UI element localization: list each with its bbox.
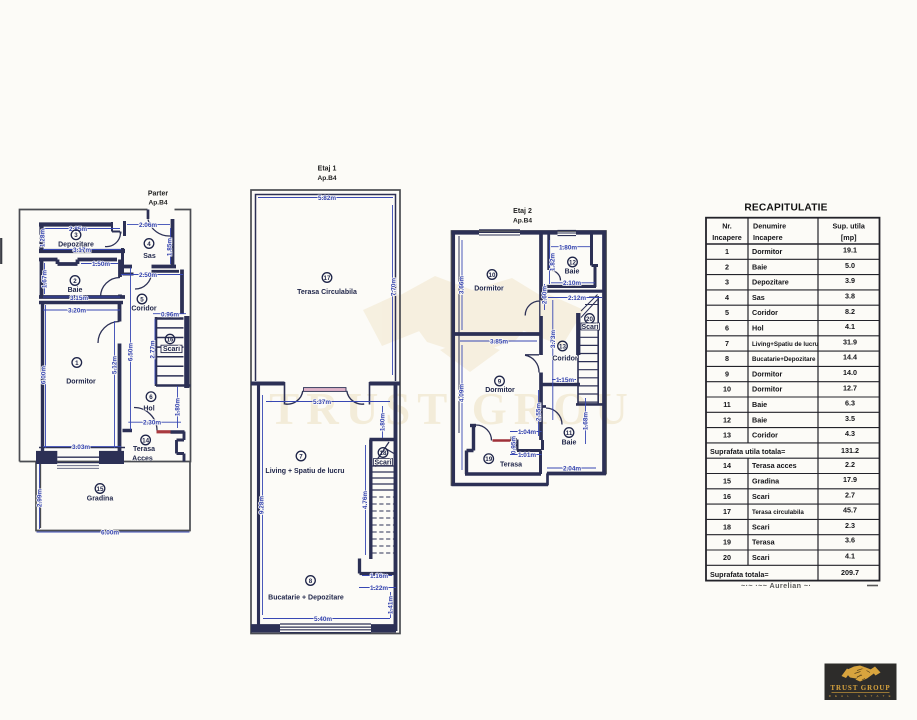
svg-text:10: 10 bbox=[489, 272, 496, 279]
svg-text:2.55m: 2.55m bbox=[536, 403, 543, 421]
svg-text:17: 17 bbox=[324, 275, 331, 282]
svg-text:5: 5 bbox=[725, 308, 729, 317]
svg-text:0.95m: 0.95m bbox=[511, 436, 518, 454]
svg-text:Denumire: Denumire bbox=[753, 222, 786, 231]
svg-text:Living + Spatiu de lucru: Living + Spatiu de lucru bbox=[265, 468, 344, 475]
svg-text:4.1: 4.1 bbox=[845, 552, 855, 561]
svg-text:131.2: 131.2 bbox=[841, 446, 859, 455]
svg-text:12: 12 bbox=[723, 415, 731, 424]
svg-text:Sas: Sas bbox=[752, 293, 765, 302]
svg-text:11: 11 bbox=[566, 430, 573, 437]
svg-text:18: 18 bbox=[380, 450, 387, 457]
svg-text:Dormitor: Dormitor bbox=[752, 247, 783, 256]
svg-text:Scari: Scari bbox=[752, 522, 770, 531]
svg-text:9: 9 bbox=[498, 378, 502, 385]
svg-text:1.04m: 1.04m bbox=[518, 429, 536, 436]
svg-text:1.80m: 1.80m bbox=[175, 398, 182, 416]
svg-text:3.85m: 3.85m bbox=[490, 339, 508, 346]
svg-text:2.77m: 2.77m bbox=[149, 340, 156, 358]
svg-text:5: 5 bbox=[140, 296, 144, 303]
svg-text:2.30m: 2.30m bbox=[143, 420, 161, 427]
svg-text:15: 15 bbox=[723, 477, 731, 486]
svg-text:2.06m: 2.06m bbox=[139, 222, 157, 229]
svg-text:1.16m: 1.16m bbox=[370, 573, 388, 580]
svg-text:Suprafata utila totala=: Suprafata utila totala= bbox=[710, 447, 785, 456]
svg-text:8: 8 bbox=[309, 578, 313, 585]
svg-text:Sas: Sas bbox=[143, 253, 156, 260]
svg-text:Dormitor: Dormitor bbox=[474, 286, 504, 293]
svg-text:7: 7 bbox=[725, 339, 729, 348]
svg-text:13: 13 bbox=[723, 431, 731, 440]
svg-text:20: 20 bbox=[586, 316, 593, 323]
svg-text:Coridor: Coridor bbox=[752, 431, 778, 440]
svg-text:2.12m: 2.12m bbox=[568, 295, 586, 302]
svg-text:1.68m: 1.68m bbox=[583, 412, 590, 430]
svg-text:2.2: 2.2 bbox=[845, 460, 855, 469]
svg-text:R E A L E S T A T E: R E A L E S T A T E bbox=[829, 694, 893, 698]
svg-text:6: 6 bbox=[149, 394, 153, 401]
svg-text:45.7: 45.7 bbox=[843, 506, 857, 515]
svg-text:4: 4 bbox=[725, 293, 729, 302]
svg-text:3: 3 bbox=[74, 232, 78, 239]
svg-text:Incapere: Incapere bbox=[753, 233, 783, 242]
svg-text:Ap.B4: Ap.B4 bbox=[513, 218, 532, 225]
svg-text:Terasa acces: Terasa acces bbox=[752, 461, 797, 470]
svg-text:Dormitor: Dormitor bbox=[752, 369, 783, 378]
svg-text:3.66m: 3.66m bbox=[459, 276, 466, 294]
svg-text:8.2: 8.2 bbox=[845, 307, 855, 316]
svg-text:Nr.: Nr. bbox=[722, 222, 732, 231]
svg-text:Scari: Scari bbox=[581, 324, 598, 331]
svg-text:3: 3 bbox=[725, 278, 729, 287]
svg-text:2.7: 2.7 bbox=[845, 490, 855, 499]
svg-text:Ap.B4: Ap.B4 bbox=[148, 200, 167, 207]
svg-text:14: 14 bbox=[142, 437, 149, 444]
svg-text:Ap.B4: Ap.B4 bbox=[317, 175, 336, 182]
svg-text:Terasa: Terasa bbox=[752, 538, 776, 547]
svg-text:1.01m: 1.01m bbox=[518, 452, 536, 459]
svg-text:3.15m: 3.15m bbox=[70, 295, 88, 302]
svg-text:3.20m: 3.20m bbox=[68, 308, 86, 315]
svg-text:RECAPITULATIE: RECAPITULATIE bbox=[744, 203, 827, 214]
svg-text:5.0: 5.0 bbox=[845, 261, 855, 270]
svg-text:[mp]: [mp] bbox=[841, 233, 857, 242]
svg-text:1.41m: 1.41m bbox=[388, 596, 395, 614]
svg-text:Acces: Acces bbox=[132, 456, 153, 463]
svg-text:Terasa circulabila: Terasa circulabila bbox=[752, 509, 804, 516]
svg-text:Parter: Parter bbox=[148, 191, 169, 198]
svg-text:8: 8 bbox=[725, 354, 729, 363]
svg-text:6.00m: 6.00m bbox=[41, 366, 48, 384]
svg-text:Living+Spatiu de lucru: Living+Spatiu de lucru bbox=[752, 341, 819, 348]
svg-text:1.85m: 1.85m bbox=[166, 238, 173, 256]
svg-text:9.28m: 9.28m bbox=[259, 496, 266, 514]
svg-text:Hol: Hol bbox=[143, 406, 154, 413]
svg-text:3.5: 3.5 bbox=[845, 414, 855, 423]
svg-text:0.96m: 0.96m bbox=[161, 311, 179, 318]
svg-text:3.9: 3.9 bbox=[845, 276, 855, 285]
svg-text:Bucatarie + Depozitare: Bucatarie + Depozitare bbox=[268, 595, 344, 602]
svg-text:1.28m: 1.28m bbox=[40, 229, 47, 247]
svg-text:3.8: 3.8 bbox=[845, 292, 855, 301]
svg-text:Gradina: Gradina bbox=[87, 496, 114, 503]
svg-text:Coridor: Coridor bbox=[131, 306, 157, 313]
svg-text:17.9: 17.9 bbox=[843, 475, 857, 484]
svg-text:3.73m: 3.73m bbox=[550, 330, 557, 348]
svg-text:7: 7 bbox=[299, 453, 303, 460]
svg-text:6.3: 6.3 bbox=[845, 399, 855, 408]
svg-text:1: 1 bbox=[75, 360, 79, 367]
svg-text:209.7: 209.7 bbox=[841, 568, 859, 577]
svg-text:1.67m: 1.67m bbox=[42, 270, 49, 288]
svg-text:Terasa: Terasa bbox=[133, 446, 155, 453]
svg-text:18: 18 bbox=[723, 522, 731, 531]
svg-text:Baie: Baie bbox=[562, 439, 577, 446]
svg-text:16: 16 bbox=[167, 336, 174, 343]
svg-text:Baie: Baie bbox=[565, 269, 580, 276]
svg-text:4.09m: 4.09m bbox=[459, 384, 466, 402]
svg-text:2.3: 2.3 bbox=[845, 521, 855, 530]
svg-text:4.3: 4.3 bbox=[845, 429, 855, 438]
svg-text:4.1: 4.1 bbox=[845, 322, 855, 331]
svg-text:Depozitare: Depozitare bbox=[752, 278, 789, 287]
svg-text:2: 2 bbox=[725, 262, 729, 271]
svg-text:Scari: Scari bbox=[163, 346, 180, 353]
svg-text:20: 20 bbox=[723, 553, 731, 562]
svg-text:16: 16 bbox=[723, 492, 731, 501]
svg-text:6.50m: 6.50m bbox=[128, 343, 135, 361]
svg-text:Coridor: Coridor bbox=[752, 308, 778, 317]
svg-text:2.60m: 2.60m bbox=[542, 286, 549, 304]
svg-text:Sup. utila: Sup. utila bbox=[833, 222, 866, 231]
svg-text:2.99m: 2.99m bbox=[37, 489, 44, 507]
svg-text:4: 4 bbox=[147, 241, 151, 248]
svg-text:1.15m: 1.15m bbox=[556, 377, 574, 384]
svg-text:5.82m: 5.82m bbox=[318, 195, 336, 202]
svg-text:Incapere: Incapere bbox=[712, 233, 742, 242]
svg-text:~·~ ·~~ Aurelian ~·: ~·~ ·~~ Aurelian ~· bbox=[741, 581, 811, 590]
svg-text:3.6: 3.6 bbox=[845, 535, 855, 544]
svg-text:Baie: Baie bbox=[68, 287, 83, 294]
svg-text:5.40m: 5.40m bbox=[314, 616, 332, 623]
svg-text:7.70m: 7.70m bbox=[391, 278, 398, 296]
svg-text:14: 14 bbox=[723, 461, 731, 470]
svg-text:Baie: Baie bbox=[752, 400, 767, 409]
svg-text:Baie: Baie bbox=[752, 415, 767, 424]
svg-text:19: 19 bbox=[485, 456, 492, 463]
svg-text:TRUST GROUP: TRUST GROUP bbox=[830, 684, 890, 692]
svg-text:14.0: 14.0 bbox=[843, 368, 857, 377]
svg-text:2.04m: 2.04m bbox=[563, 466, 581, 473]
svg-text:6.00m: 6.00m bbox=[101, 530, 119, 537]
svg-text:31.9: 31.9 bbox=[843, 337, 857, 346]
svg-text:4.76m: 4.76m bbox=[362, 491, 369, 509]
svg-text:2.50m: 2.50m bbox=[139, 272, 157, 279]
svg-text:13: 13 bbox=[559, 343, 566, 350]
svg-text:5.37m: 5.37m bbox=[313, 399, 331, 406]
svg-text:19.1: 19.1 bbox=[843, 246, 857, 255]
svg-text:15: 15 bbox=[97, 486, 104, 493]
svg-text:Scari: Scari bbox=[752, 492, 770, 501]
svg-text:Terasa Circulabila: Terasa Circulabila bbox=[297, 289, 357, 296]
svg-text:3.03m: 3.03m bbox=[72, 444, 90, 451]
svg-text:Dormitor: Dormitor bbox=[485, 387, 515, 394]
svg-text:14.4: 14.4 bbox=[843, 353, 857, 362]
svg-text:Dormitor: Dormitor bbox=[66, 379, 96, 386]
svg-text:1.50m: 1.50m bbox=[92, 261, 110, 268]
svg-text:9: 9 bbox=[725, 369, 729, 378]
svg-text:Etaj 2: Etaj 2 bbox=[513, 208, 532, 215]
svg-text:1.80m: 1.80m bbox=[559, 244, 577, 251]
svg-text:Scari: Scari bbox=[752, 553, 770, 562]
svg-text:2: 2 bbox=[73, 278, 77, 285]
svg-text:Hol: Hol bbox=[752, 324, 764, 333]
svg-text:1.80m: 1.80m bbox=[380, 413, 387, 431]
svg-text:5.12m: 5.12m bbox=[112, 356, 119, 374]
svg-text:10: 10 bbox=[723, 385, 731, 394]
svg-text:Gradina: Gradina bbox=[752, 477, 780, 486]
svg-text:17: 17 bbox=[723, 507, 731, 516]
svg-text:Terasa: Terasa bbox=[500, 462, 522, 469]
svg-text:Bucatarie+Depozitare: Bucatarie+Depozitare bbox=[752, 356, 816, 363]
svg-text:19: 19 bbox=[723, 538, 731, 547]
svg-text:6: 6 bbox=[725, 324, 729, 333]
svg-text:Dormitor: Dormitor bbox=[752, 385, 783, 394]
svg-text:Etaj 1: Etaj 1 bbox=[318, 166, 337, 173]
svg-text:12: 12 bbox=[569, 259, 576, 266]
svg-text:1: 1 bbox=[725, 247, 729, 256]
svg-text:2.10m: 2.10m bbox=[563, 280, 581, 287]
svg-text:12.7: 12.7 bbox=[843, 383, 857, 392]
svg-text:1.82m: 1.82m bbox=[549, 253, 556, 271]
svg-text:Depozitare: Depozitare bbox=[58, 241, 94, 248]
svg-text:11: 11 bbox=[723, 400, 731, 409]
svg-text:Scari: Scari bbox=[374, 459, 391, 466]
svg-text:1.22m: 1.22m bbox=[370, 585, 388, 592]
svg-text:Suprafata totala=: Suprafata totala= bbox=[710, 570, 769, 579]
svg-text:Baie: Baie bbox=[752, 262, 767, 271]
svg-text:Coridor: Coridor bbox=[552, 356, 578, 363]
